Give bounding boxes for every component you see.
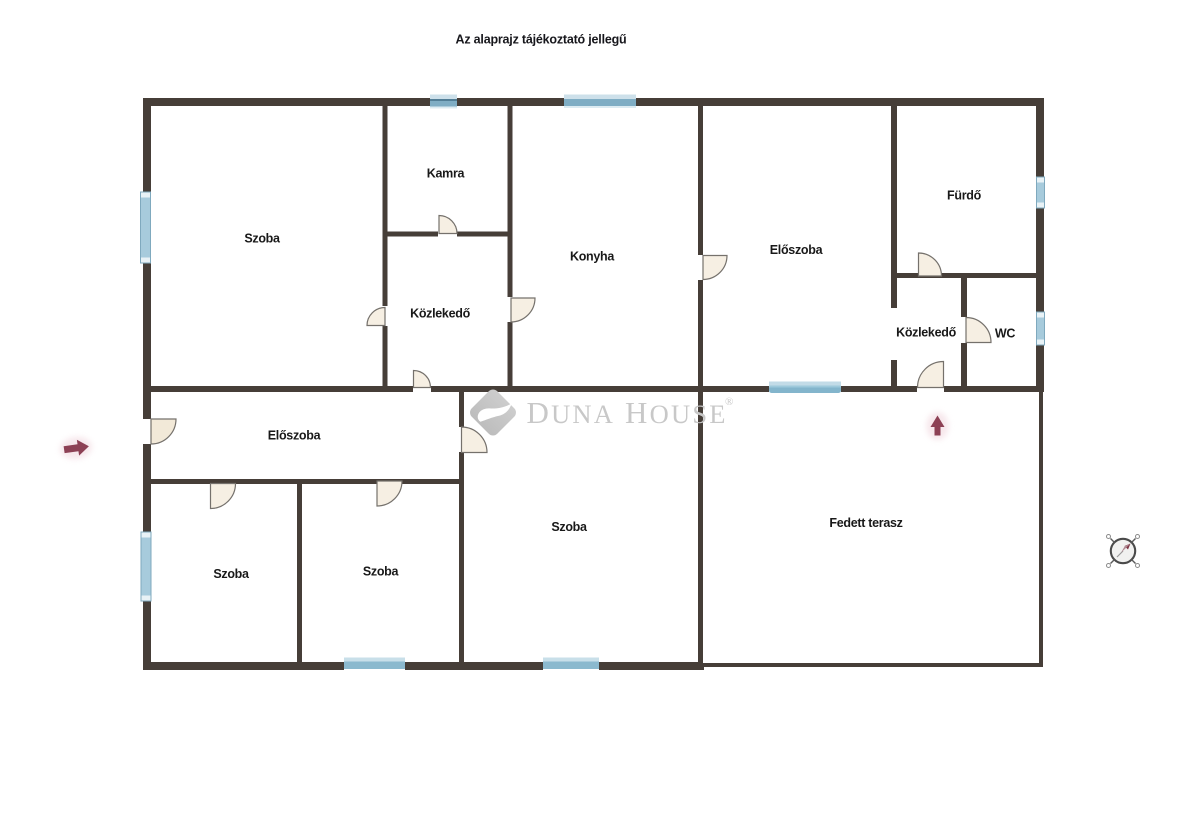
svg-text:WC: WC (995, 327, 1015, 341)
svg-text:Közlekedő: Közlekedő (896, 326, 956, 340)
svg-text:Az alaprajz tájékoztató jelleg: Az alaprajz tájékoztató jellegű (456, 33, 627, 47)
svg-text:Szoba: Szoba (213, 567, 250, 581)
svg-text:Fürdő: Fürdő (947, 189, 982, 203)
svg-text:®: ® (725, 396, 733, 408)
svg-text:Kamra: Kamra (427, 167, 466, 181)
svg-text:Előszoba: Előszoba (770, 243, 824, 257)
svg-text:Konyha: Konyha (570, 250, 615, 264)
svg-text:Szoba: Szoba (363, 565, 400, 579)
svg-text:Előszoba: Előszoba (268, 429, 322, 443)
svg-text:DUNA HOUSE: DUNA HOUSE (527, 395, 728, 430)
svg-text:Szoba: Szoba (551, 520, 588, 534)
svg-text:Közlekedő: Közlekedő (410, 307, 470, 321)
svg-text:Fedett terasz: Fedett terasz (829, 516, 902, 530)
svg-text:Szoba: Szoba (244, 232, 281, 246)
